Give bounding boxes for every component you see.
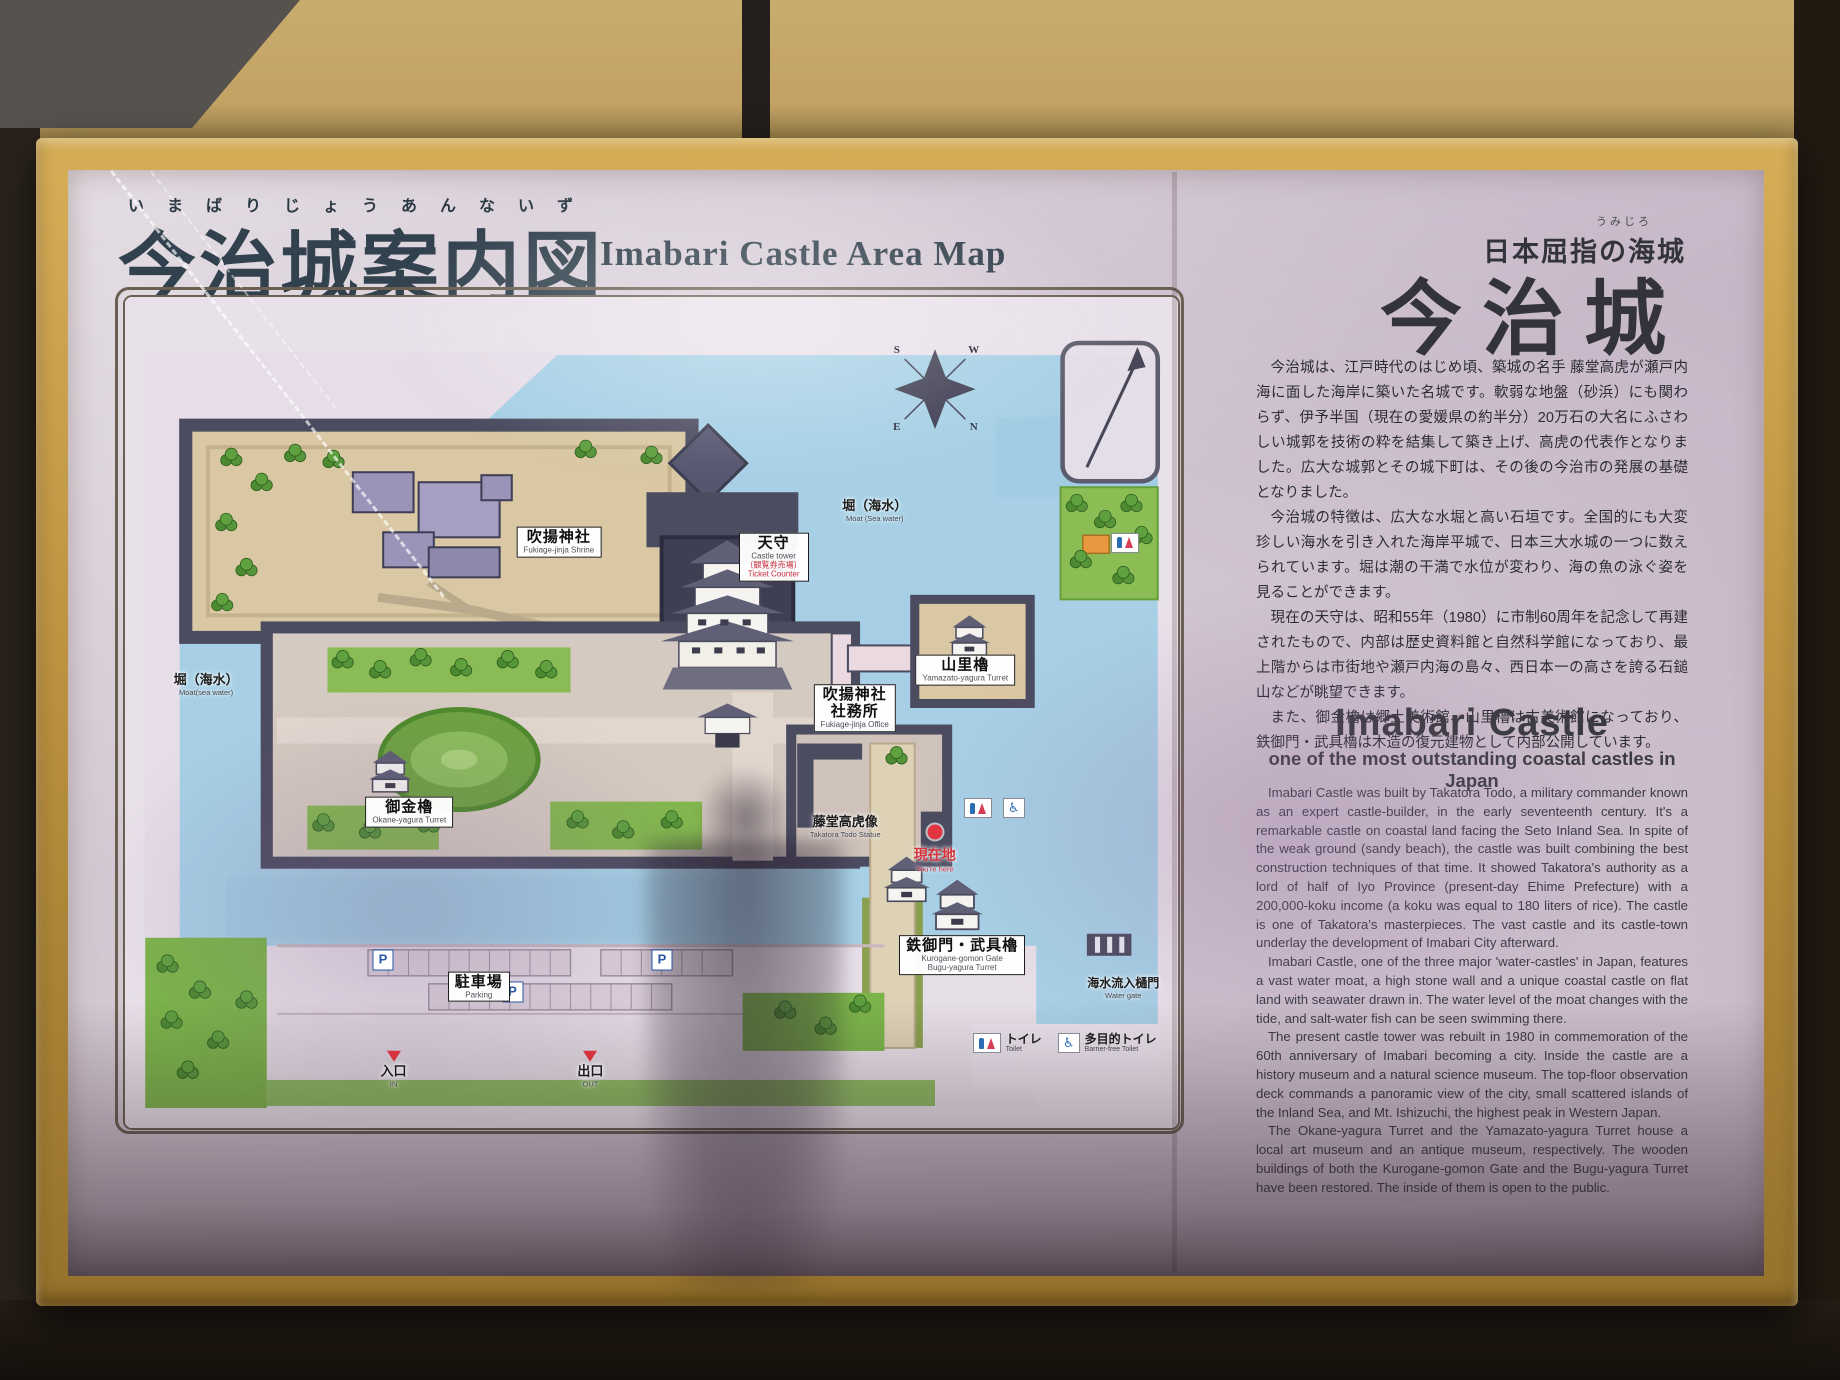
compass-letter-n: N: [970, 421, 978, 433]
entrance-arrow-icon: [386, 1051, 400, 1062]
toilet-woman-icon: [1125, 537, 1133, 548]
english-description: Imabari Castle was built by Takatora Tod…: [1256, 784, 1688, 1198]
map-label-parking: 駐車場 Parking: [448, 971, 510, 1002]
label-jp: 天守: [746, 536, 802, 553]
map-label-okane-turret: 御金櫓 Okane-yagura Turret: [365, 797, 453, 828]
label-jp-line2: 社務所: [821, 704, 889, 721]
label-jp: 海水流入樋門: [1087, 976, 1159, 991]
toilet-icon: [973, 1033, 1001, 1053]
map-label-entrance: 入口 IN: [380, 1051, 406, 1090]
label-en: Parking: [455, 991, 503, 1000]
legend-toilet: トイレ Toilet: [973, 1033, 1042, 1053]
legend-label-en: Toilet: [1006, 1046, 1042, 1053]
map-label-exit: 出口 OUT: [577, 1051, 603, 1090]
compass-letter-s: S: [894, 344, 900, 356]
label-en: Water gate: [1087, 991, 1159, 1000]
label-en-line2: Bugu-yagura Turret: [906, 964, 1018, 973]
label-jp: 山里櫓: [922, 658, 1008, 675]
photographer-reflection-body: [645, 840, 845, 1290]
parking-p-icon: P: [372, 950, 393, 971]
page-title-english: Imabari Castle Area Map: [600, 234, 1006, 274]
en-paragraph: The present castle tower was rebuilt in …: [1256, 1028, 1688, 1122]
map-legend: トイレ Toilet ♿ 多目的トイレ Barrier-free Toilet: [973, 1033, 1157, 1053]
label-en: OUT: [577, 1080, 603, 1089]
label-jp: 吹揚神社: [523, 530, 594, 547]
exit-arrow-icon: [583, 1051, 597, 1062]
legend-label-en: Barrier-free Toilet: [1085, 1046, 1157, 1053]
background-ground: [0, 1300, 1840, 1380]
parking-p-icon: P: [652, 950, 673, 971]
map-label-fukiage-shrine: 吹揚神社 Fukiage-jinja Shrine: [516, 527, 601, 558]
toilet-icon: [964, 798, 992, 818]
map-label-takatora-statue: 藤堂高虎像 Takatora Todo Statue: [810, 814, 881, 840]
panel-seam: [1172, 172, 1177, 1272]
label-en-note: Ticket Counter: [746, 570, 802, 579]
label-en: Takatora Todo Statue: [810, 831, 881, 840]
you-are-here-dot: [927, 825, 942, 840]
toilet-man-icon: [1117, 537, 1122, 548]
label-en: Okane-yagura Turret: [372, 817, 446, 826]
compass-letter-e: E: [893, 421, 900, 433]
wheelchair-icon: ♿: [1058, 1033, 1080, 1053]
map-label-kurogane-gate: 鉄御門・武具櫓 Kurogane-gomon Gate Bugu-yagura …: [899, 935, 1025, 975]
map-label-shrine-office: 吹揚神社 社務所 Fukiage-jinja Office: [814, 685, 896, 733]
label-jp: 入口: [380, 1064, 406, 1080]
toilet-icon: [1111, 533, 1139, 553]
toilet-man-icon: [979, 1038, 984, 1049]
jp-paragraph: 現在の天守は、昭和55年（1980）に市制60周年を記念して再建されたもので、内…: [1256, 606, 1688, 706]
label-jp: 堀（海水）: [174, 672, 239, 688]
background-post: [742, 0, 770, 148]
toilet-man-icon: [970, 803, 975, 814]
toilet-woman-icon: [978, 803, 986, 814]
label-en: You're here: [914, 864, 956, 873]
label-en: Yamazato-yagura Turret: [922, 675, 1008, 684]
japanese-description: 今治城は、江戸時代のはじめ頃、築城の名手 藤堂高虎が瀬戸内海に面した海岸に築いた…: [1256, 356, 1688, 756]
jp-paragraph: 今治城は、江戸時代のはじめ頃、築城の名手 藤堂高虎が瀬戸内海に面した海岸に築いた…: [1256, 356, 1688, 506]
label-jp: 吹揚神社: [821, 688, 889, 705]
legend-label-jp: 多目的トイレ: [1085, 1033, 1157, 1046]
label-jp: 藤堂高虎像: [810, 814, 881, 830]
legend-label-jp: トイレ: [1006, 1033, 1042, 1046]
wheelchair-icon: ♿: [1003, 798, 1025, 818]
label-jp: 駐車場: [455, 974, 503, 991]
label-jp: 出口: [577, 1064, 603, 1080]
background-edge-right: [1794, 0, 1840, 1380]
label-en: IN: [380, 1080, 406, 1089]
label-en: Moat (Sea water): [842, 514, 907, 523]
en-paragraph: Imabari Castle was built by Takatora Tod…: [1256, 784, 1688, 953]
map-label-moat-top: 堀（海水） Moat (Sea water): [842, 498, 907, 524]
en-paragraph: The Okane-yagura Turret and the Yamazato…: [1256, 1122, 1688, 1197]
english-heading: Imabari Castle: [1256, 702, 1688, 745]
map-label-water-gate: 海水流入樋門 Water gate: [1087, 976, 1159, 1000]
castle-name-title: 今治城: [1256, 252, 1686, 371]
en-paragraph: Imabari Castle, one of the three major '…: [1256, 953, 1688, 1028]
tagline-furigana: うみじろ: [1596, 213, 1652, 229]
background-edge-left: [0, 128, 40, 1380]
map-label-yamazato-turret: 山里櫓 Yamazato-yagura Turret: [915, 655, 1015, 686]
label-en: Fukiage-jinja Office: [821, 721, 889, 730]
toilet-woman-icon: [987, 1038, 995, 1049]
map-label-castle-tower: 天守 Castle tower 〔観覧券売場〕 Ticket Counter: [739, 533, 809, 582]
compass-letter-w: W: [968, 344, 979, 356]
legend-barrier-free-toilet: ♿ 多目的トイレ Barrier-free Toilet: [1058, 1033, 1157, 1053]
map-label-you-are-here: 現在地 You're here: [914, 847, 956, 874]
jp-paragraph: 今治城の特徴は、広大な水堀と高い石垣です。全国的にも大変珍しい海水を引き入れた海…: [1256, 506, 1688, 606]
label-en: Fukiage-jinja Shrine: [523, 547, 594, 556]
label-jp: 御金櫓: [372, 800, 446, 817]
label-en: Moat(sea water): [174, 689, 239, 698]
label-jp: 鉄御門・武具櫓: [906, 938, 1018, 955]
label-jp: 堀（海水）: [842, 498, 907, 514]
map-label-moat-left: 堀（海水） Moat(sea water): [174, 672, 239, 698]
label-jp: 現在地: [914, 847, 956, 865]
